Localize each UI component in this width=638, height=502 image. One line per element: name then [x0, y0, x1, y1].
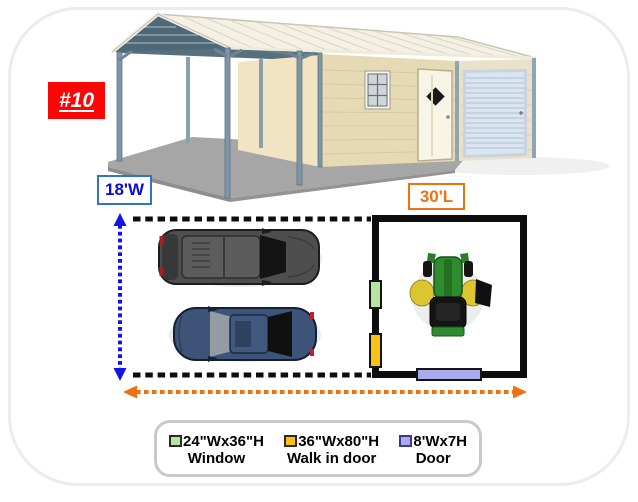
legend-item-door: 8'Wx7H Door — [399, 433, 467, 467]
walk-in-door-swatch — [284, 435, 297, 447]
unit-number-badge: #10 — [48, 82, 105, 119]
suv-top-view — [158, 228, 322, 287]
carport-product-sheet: #10 18'W 30'L 24"Wx36"H Window 36"Wx80"H… — [0, 0, 638, 502]
length-arrow — [123, 386, 527, 399]
building-rollup-door — [463, 69, 527, 158]
length-dimension-text: 30'L — [420, 187, 453, 207]
tractor-top-view — [410, 253, 492, 336]
building-render — [108, 14, 610, 202]
walk-in-door-label: Walk in door — [287, 450, 376, 467]
legend-window-size-row: 24"Wx36"H — [169, 433, 264, 450]
door-swatch — [399, 435, 412, 447]
building-window — [365, 71, 390, 109]
width-arrow — [114, 213, 127, 381]
window-marker — [369, 280, 382, 309]
width-dimension-text: 18'W — [105, 180, 144, 200]
door-size-text: 8'Wx7H — [413, 433, 467, 450]
door-label: Door — [416, 450, 451, 467]
length-dimension-label: 30'L — [408, 183, 465, 210]
legend-item-walk-in-door: 36"Wx80"H Walk in door — [284, 433, 379, 467]
window-size-text: 24"Wx36"H — [183, 433, 264, 450]
window-swatch — [169, 435, 182, 447]
garage-door-marker — [416, 368, 482, 381]
legend-item-window: 24"Wx36"H Window — [169, 433, 264, 467]
walk-in-door-size-text: 36"Wx80"H — [298, 433, 379, 450]
window-label: Window — [188, 450, 245, 467]
legend-box: 24"Wx36"H Window 36"Wx80"H Walk in door … — [154, 420, 482, 477]
legend-door-size-row: 8'Wx7H — [399, 433, 467, 450]
building-walk-in-door — [418, 69, 452, 161]
walk-in-door-marker — [369, 333, 382, 368]
width-dimension-label: 18'W — [97, 175, 152, 205]
legend-walkdoor-size-row: 36"Wx80"H — [284, 433, 379, 450]
unit-number-text: #10 — [59, 89, 94, 113]
sedan-top-view — [169, 306, 321, 362]
